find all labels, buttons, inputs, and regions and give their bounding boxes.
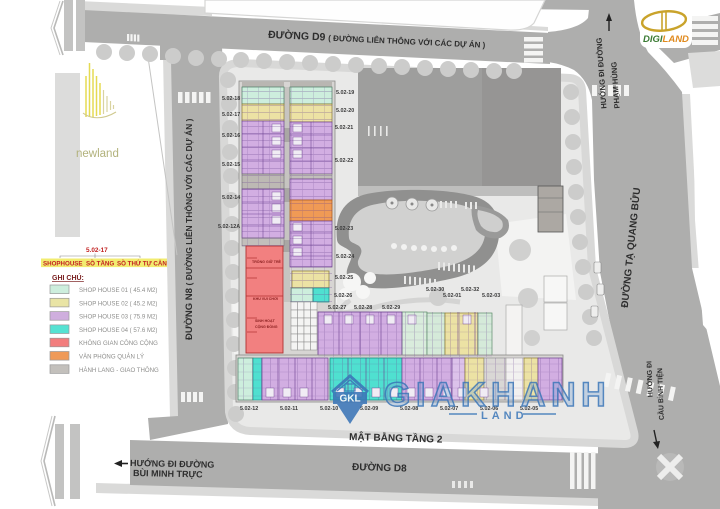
- svg-text:5.02-27: 5.02-27: [328, 305, 346, 311]
- svg-text:DIGILAND: DIGILAND: [643, 34, 689, 45]
- svg-text:BÙI MINH TRỰC: BÙI MINH TRỰC: [133, 467, 203, 479]
- svg-text:TRÔNG GIỮ TRẺ: TRÔNG GIỮ TRẺ: [252, 259, 282, 264]
- svg-text:SHOP HOUSE 04 ( 57.6 M2): SHOP HOUSE 04 ( 57.6 M2): [79, 327, 157, 334]
- svg-text:LAND: LAND: [481, 410, 528, 422]
- svg-text:5.02-19: 5.02-19: [336, 90, 354, 96]
- svg-text:5.02-17: 5.02-17: [86, 247, 108, 254]
- svg-text:KHU VUI CHƠI: KHU VUI CHƠI: [253, 297, 278, 301]
- svg-text:5.02-10: 5.02-10: [320, 406, 338, 412]
- svg-text:KHÔNG GIAN CÔNG CỘNG: KHÔNG GIAN CÔNG CỘNG: [79, 340, 158, 347]
- svg-text:5.02-29: 5.02-29: [382, 305, 400, 311]
- svg-text:newland: newland: [76, 148, 119, 160]
- svg-text:SHOP HOUSE 01 ( 45.4 M2): SHOP HOUSE 01 ( 45.4 M2): [79, 287, 157, 294]
- svg-text:SỒ THỨ TỰ CĂN: SỒ THỨ TỰ CĂN: [117, 260, 167, 267]
- svg-text:5.02-17: 5.02-17: [222, 112, 240, 118]
- svg-text:5.02-23: 5.02-23: [335, 226, 353, 232]
- svg-text:5.02-30: 5.02-30: [426, 287, 444, 293]
- svg-text:5.02-03: 5.02-03: [482, 293, 500, 299]
- svg-text:5.02-14: 5.02-14: [222, 195, 240, 201]
- svg-text:5.02-22: 5.02-22: [335, 158, 353, 164]
- svg-text:SHOP HOUSE 03 ( 75.9 M2): SHOP HOUSE 03 ( 75.9 M2): [79, 314, 157, 321]
- svg-text:SHOP HOUSE 02 ( 45.2 M2): SHOP HOUSE 02 ( 45.2 M2): [79, 300, 157, 307]
- svg-text:VĂN PHÒNG QUẢN LÝ: VĂN PHÒNG QUẢN LÝ: [79, 354, 144, 361]
- svg-text:5.02-12A: 5.02-12A: [218, 224, 240, 230]
- svg-text:SINH HOẠT: SINH HOẠT: [255, 319, 276, 323]
- svg-text:5.02-25: 5.02-25: [335, 275, 353, 281]
- svg-text:HÀNH LANG - GIAO THÔNG: HÀNH LANG - GIAO THÔNG: [79, 367, 159, 374]
- svg-text:CỘNG ĐỒNG: CỘNG ĐỒNG: [255, 324, 278, 329]
- svg-text:5.02-28: 5.02-28: [354, 305, 372, 311]
- svg-text:5.02-12: 5.02-12: [240, 406, 258, 412]
- svg-text:5.02-01: 5.02-01: [443, 293, 461, 299]
- svg-text:GHI CHÚ:: GHI CHÚ:: [52, 273, 84, 282]
- svg-text:5.02-18: 5.02-18: [222, 96, 240, 102]
- svg-text:5.02-32: 5.02-32: [461, 287, 479, 293]
- svg-text:5.02-24: 5.02-24: [336, 254, 354, 260]
- svg-text:5.02-15: 5.02-15: [222, 162, 240, 168]
- svg-text:GIAKHANH: GIAKHANH: [384, 376, 611, 414]
- svg-text:5.02-16: 5.02-16: [222, 133, 240, 139]
- svg-text:ĐƯỜNG N8 ( ĐƯỜNG LIÊN THÔNG VỚ: ĐƯỜNG N8 ( ĐƯỜNG LIÊN THÔNG VỚI CÁC DỰ Á…: [183, 118, 195, 340]
- svg-text:5.02-21: 5.02-21: [335, 125, 353, 131]
- svg-text:5.02-26: 5.02-26: [334, 293, 352, 299]
- svg-text:SỒ TẦNG: SỒ TẦNG: [86, 260, 114, 267]
- svg-text:SHOPHOUSE: SHOPHOUSE: [43, 260, 83, 267]
- svg-text:5.02-09: 5.02-09: [360, 406, 378, 412]
- svg-text:5.02-20: 5.02-20: [336, 108, 354, 114]
- svg-text:GKL: GKL: [339, 394, 360, 405]
- svg-text:5.02-11: 5.02-11: [280, 406, 298, 412]
